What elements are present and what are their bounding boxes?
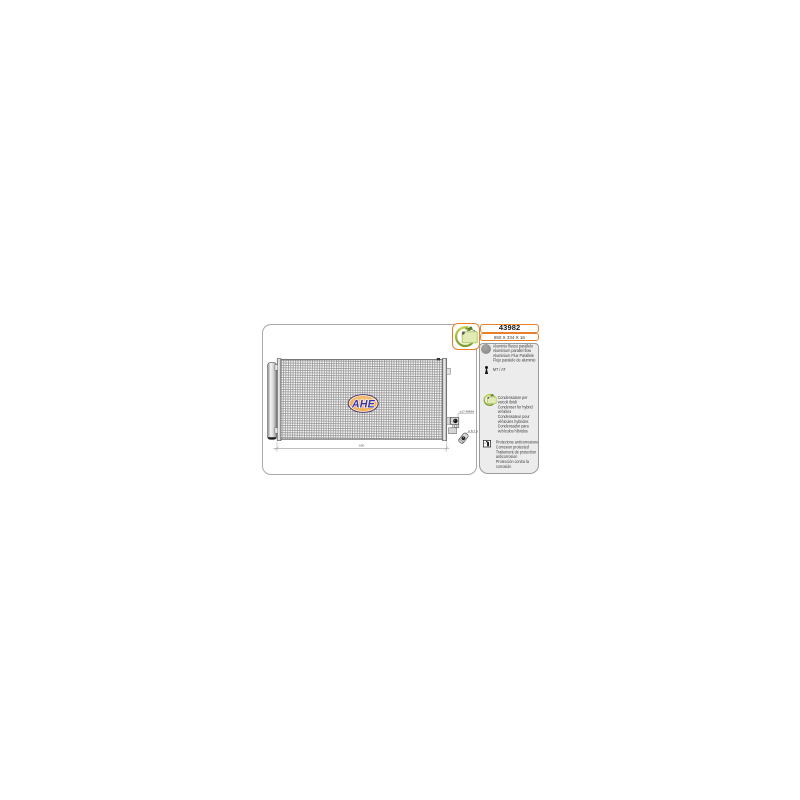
svg-text:Flujo paralelo de aluminio: Flujo paralelo de aluminio — [493, 358, 536, 363]
svg-text:650: 650 — [359, 443, 364, 447]
svg-text:MT / AT: MT / AT — [493, 367, 506, 372]
svg-text:corrosión: corrosión — [496, 464, 512, 469]
svg-text:vehículos híbridos: vehículos híbridos — [498, 428, 529, 433]
svg-text:AHE: AHE — [350, 398, 375, 410]
svg-text:650 X 334 X 16: 650 X 334 X 16 — [494, 335, 525, 341]
